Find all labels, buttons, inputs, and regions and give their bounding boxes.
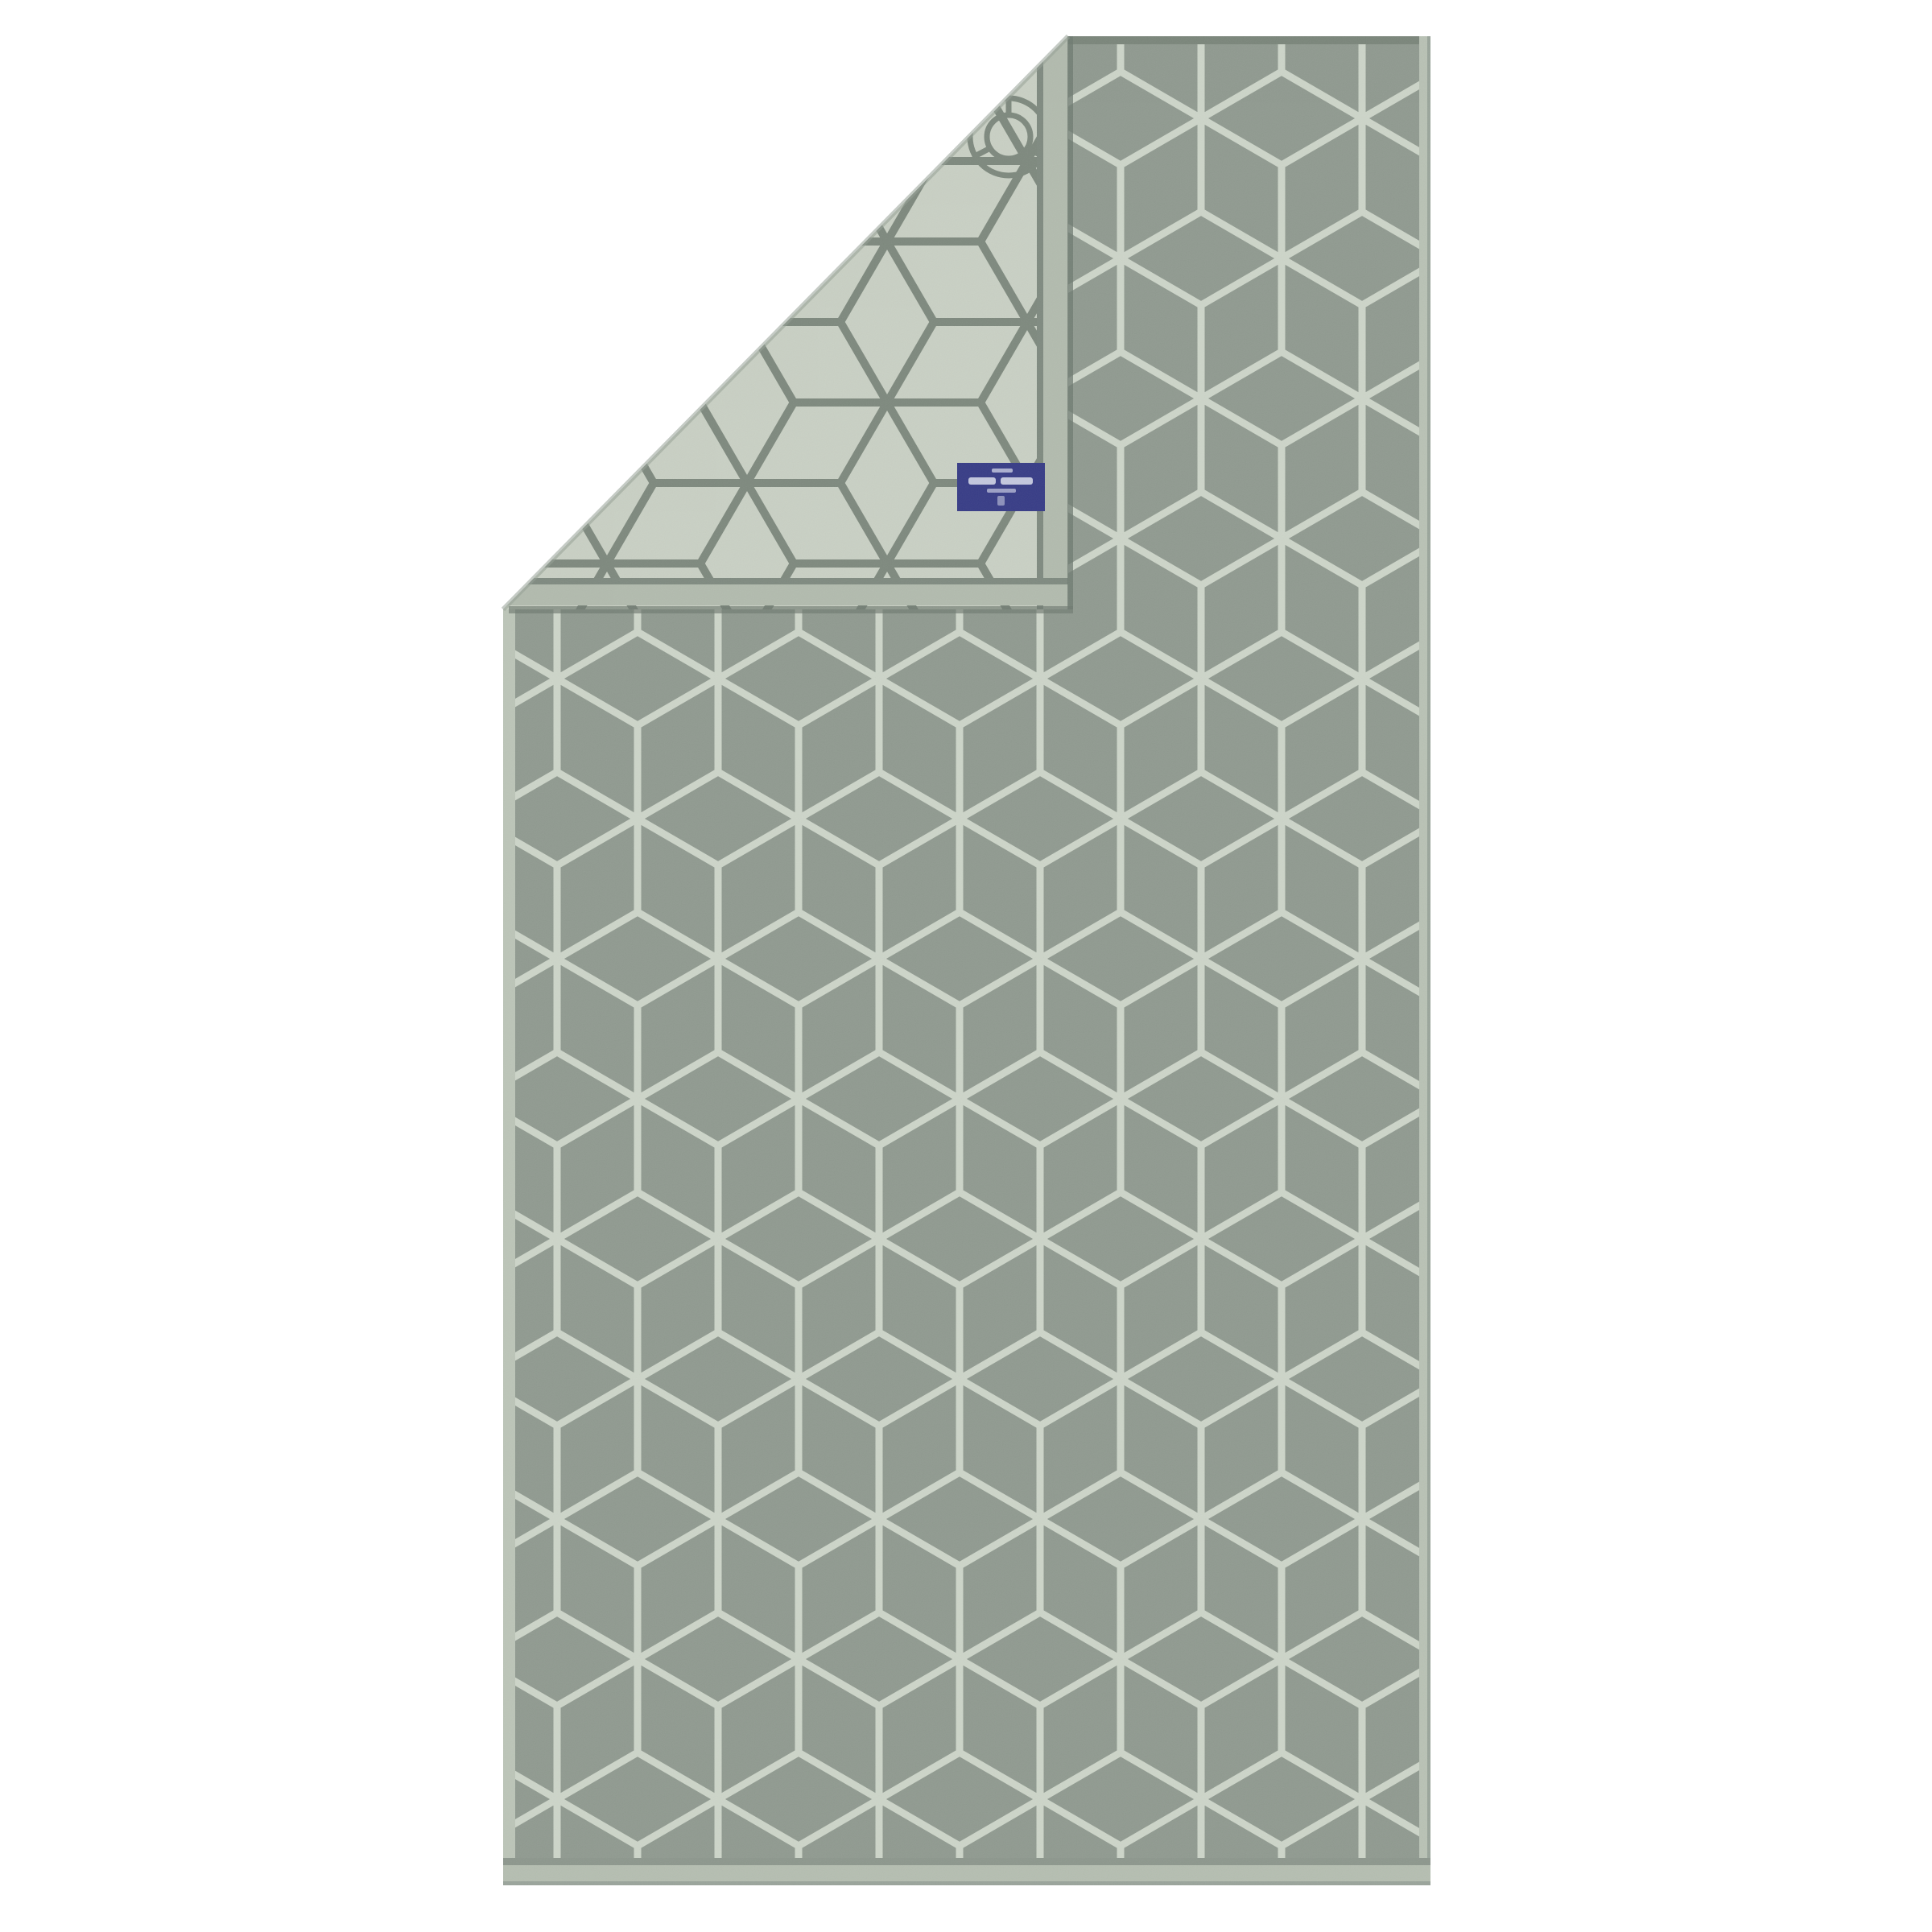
product-photo	[0, 0, 1932, 1932]
towel-photo-canvas	[0, 0, 1932, 1932]
